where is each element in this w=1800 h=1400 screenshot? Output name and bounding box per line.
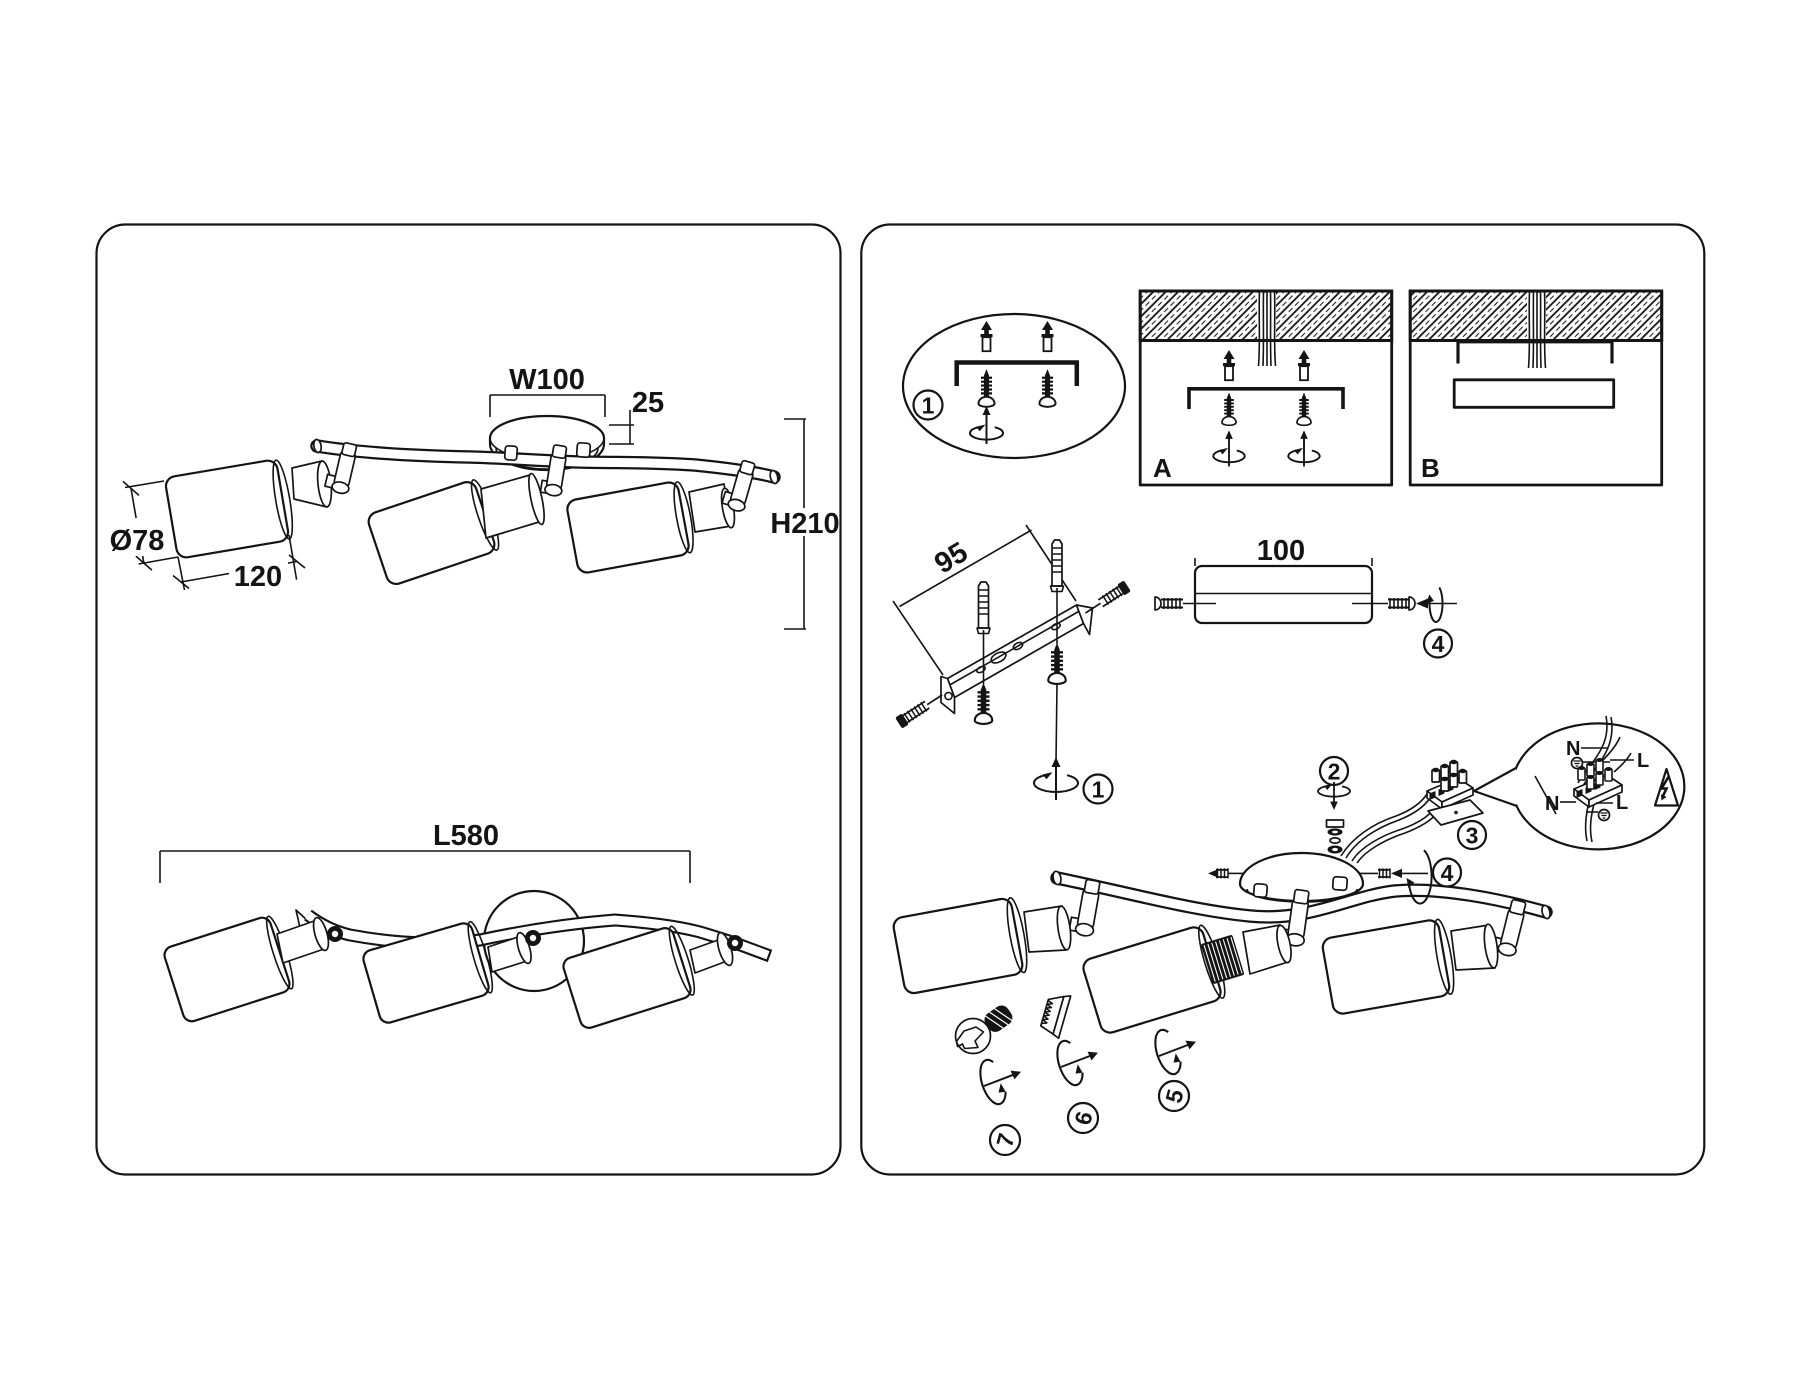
svg-text:W100: W100 [509,364,585,396]
svg-text:120: 120 [234,561,282,593]
svg-text:100: 100 [1257,535,1305,567]
svg-text:2: 2 [1328,759,1341,785]
svg-text:Ø78: Ø78 [110,525,165,557]
svg-text:L: L [1616,792,1628,814]
svg-text:L: L [1637,750,1649,772]
svg-text:N: N [1566,738,1580,760]
svg-text:H210: H210 [770,508,839,540]
svg-text:L580: L580 [433,820,499,852]
svg-text:B: B [1421,453,1440,483]
svg-text:A: A [1153,453,1172,483]
svg-text:4: 4 [1432,631,1445,657]
svg-text:4: 4 [1441,860,1454,886]
svg-text:25: 25 [632,387,664,419]
svg-text:N: N [1545,793,1559,815]
svg-text:1: 1 [1092,777,1105,803]
svg-text:3: 3 [1466,823,1479,849]
svg-text:1: 1 [922,393,935,419]
